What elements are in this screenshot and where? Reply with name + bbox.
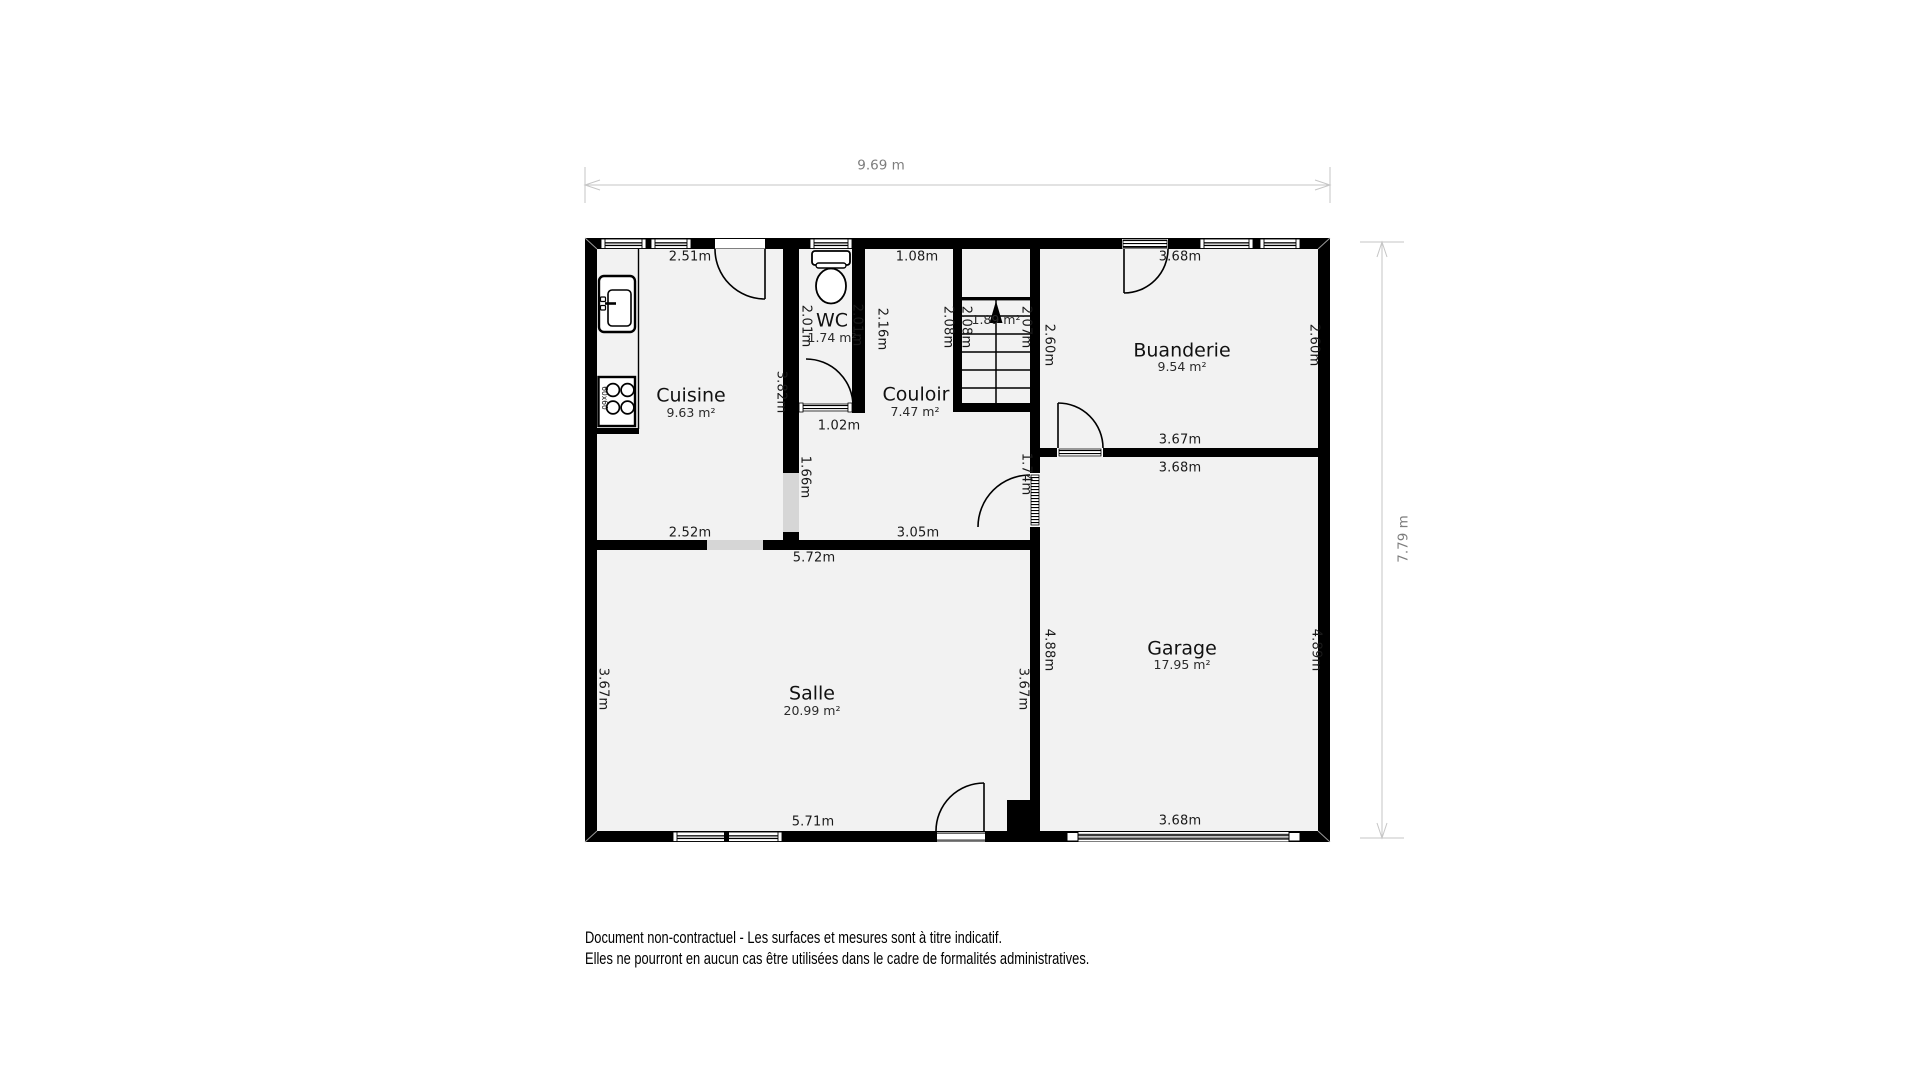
- dim-couloir-top: 1.08m: [896, 251, 939, 264]
- window-cuisine-1: [601, 239, 646, 249]
- wall-salle-top-left: [597, 540, 707, 550]
- room-area-escalier: 1.89 m²: [972, 314, 1021, 327]
- dim-garage-left: 4.88m: [1043, 629, 1056, 672]
- dim-stairs-right: 2.07m: [1020, 306, 1033, 349]
- dim-wc-right: 2.01m: [851, 304, 864, 347]
- dim-couloir-wall-lower: 1.66m: [799, 456, 812, 499]
- dim-cuisine-bottom: 2.52m: [669, 527, 712, 540]
- dim-salle-right: 3.67m: [1017, 668, 1030, 711]
- room-area-cuisine: 9.63 m²: [667, 407, 716, 420]
- dim-cuisine-right: 3.82m: [775, 371, 788, 414]
- room-area-salle: 20.99 m²: [784, 705, 841, 718]
- dim-wc-door: 1.02m: [818, 420, 861, 433]
- wall-exterior-left: [585, 238, 597, 842]
- dim-buanderie-right: 2.60m: [1308, 324, 1321, 367]
- window-cuisine-2: [651, 239, 691, 249]
- dim-garage-top: 3.68m: [1159, 462, 1202, 475]
- dim-garage-bottom: 3.68m: [1159, 815, 1202, 828]
- dim-couloir-right: 2.08m: [942, 306, 955, 349]
- stove-size-label: 60x60: [600, 386, 608, 410]
- page: { "document": { "disclaimer_line1": "Doc…: [0, 0, 1920, 1080]
- window-salle: [673, 832, 782, 842]
- dim-cuisine-top: 2.51m: [669, 251, 712, 264]
- wall-buanderie-bottom-left: [1040, 448, 1057, 457]
- dim-buanderie-top: 3.68m: [1159, 251, 1202, 264]
- wall-center-vertical-upper: [1030, 249, 1040, 473]
- toilet-icon: [812, 251, 850, 304]
- garage-door: [1067, 832, 1300, 842]
- wall-center-vertical-lower: [1030, 527, 1040, 831]
- room-label-salle: Salle: [789, 685, 835, 704]
- wall-cuisine-right-stub: [783, 532, 799, 541]
- dim-salle-left: 3.67m: [597, 668, 610, 711]
- dim-garage-right: 4.89m: [1310, 629, 1323, 672]
- dim-wc-left: 2.01m: [800, 305, 813, 348]
- room-label-buanderie: Buanderie: [1133, 342, 1230, 361]
- counter-end: [597, 428, 639, 434]
- wall-stairs-bottom: [953, 403, 1040, 412]
- window-buanderie-1: [1200, 239, 1253, 249]
- window-wc: [810, 239, 852, 249]
- doorway-salle: [937, 832, 985, 842]
- sink-icon: [599, 276, 635, 332]
- floorplan-drawing: [0, 0, 1920, 1080]
- window-buanderie-2: [1260, 239, 1300, 249]
- doorway-cuisine: [715, 239, 765, 249]
- dim-buanderie-bottom: 3.67m: [1159, 434, 1202, 447]
- dim-salle-bottom: 5.71m: [792, 816, 835, 829]
- room-area-garage: 17.95 m²: [1154, 659, 1211, 672]
- overall-height-dimension: 7.79 m: [1397, 515, 1411, 563]
- dim-buanderie-left: 2.60m: [1043, 324, 1056, 367]
- wall-pillar: [1007, 800, 1040, 832]
- room-label-cuisine: Cuisine: [656, 387, 726, 406]
- dim-stairs-left: 2.08m: [960, 306, 973, 349]
- room-area-couloir: 7.47 m²: [891, 406, 940, 419]
- wall-salle-top-right: [763, 540, 1030, 550]
- room-area-buanderie: 9.54 m²: [1158, 361, 1207, 374]
- opening-cuisine-salle: [707, 540, 763, 550]
- overall-width-dimension: 9.69 m: [857, 159, 905, 173]
- dim-couloir-bottom: 3.05m: [897, 527, 940, 540]
- dim-couloir-garage-door: 1.74m: [1020, 453, 1033, 496]
- room-label-couloir: Couloir: [883, 386, 950, 405]
- room-label-garage: Garage: [1147, 640, 1217, 659]
- dim-salle-top: 5.72m: [793, 552, 836, 565]
- wall-buanderie-bottom-right: [1103, 448, 1318, 457]
- wall-cuisine-right-upper: [783, 249, 799, 473]
- disclaimer-line-1: Document non-contractuel - Les surfaces …: [585, 929, 1002, 948]
- dim-couloir-wall-upper: 2.16m: [876, 308, 889, 351]
- disclaimer-line-2: Elles ne pourront en aucun cas être util…: [585, 950, 1089, 969]
- room-label-wc: WC: [816, 312, 848, 331]
